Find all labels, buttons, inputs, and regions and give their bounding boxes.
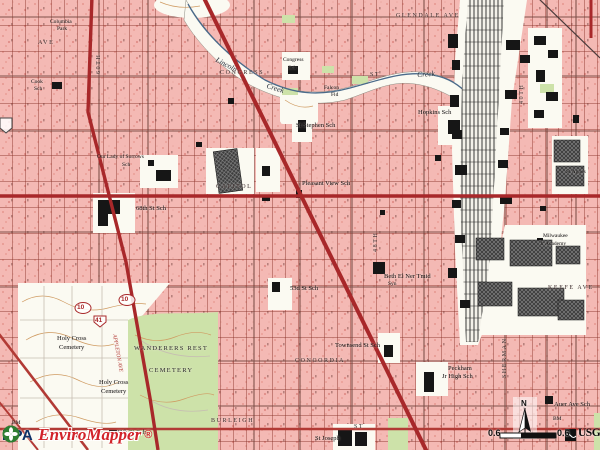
- map-label-60th: 60TH: [96, 54, 102, 74]
- enviromapper-map[interactable]: ColumbiaParkAVECookSch60THLincolnCreekCO…: [0, 0, 600, 450]
- map-label-our-lady-of-sorrows: Our Lady of Sorrows: [97, 155, 144, 161]
- watermark: EPA EnviroMapper ®: [2, 425, 152, 445]
- map-label-cemetery: Cemetery: [101, 389, 126, 396]
- map-label-keefe-ave: KEEFE AVE: [548, 285, 594, 291]
- map-labels-layer: ColumbiaParkAVECookSch60THLincolnCreekCO…: [0, 0, 600, 450]
- map-label-fld: Fld: [331, 93, 338, 99]
- map-label-jr-academy: Jr Academy: [540, 242, 566, 248]
- registered-symbol: ®: [144, 429, 152, 441]
- map-label-park: Park: [57, 27, 67, 33]
- map-label-beth-el-ner-tmid: Beth El Ner Tmid: [384, 274, 431, 281]
- map-label-48th: 48TH: [373, 232, 379, 252]
- map-label-glendale-ave: GLENDALE AVE: [396, 13, 460, 19]
- north-label: N: [521, 399, 527, 408]
- map-label-10: 10: [121, 297, 128, 304]
- map-label-st: ST: [354, 424, 364, 430]
- map-label-cook: Cook: [31, 80, 43, 86]
- map-label-burleigh: BURLEIGH: [211, 418, 254, 424]
- map-label-68th-st-sch: 68th St Sch: [136, 206, 166, 213]
- map-label-creek: Creek: [417, 70, 435, 79]
- map-label-st: ST: [370, 72, 380, 78]
- map-label-sherman: SHERMAN: [502, 337, 508, 378]
- map-label-congress: Congress: [283, 58, 303, 64]
- map-label-st-stephen-sch: St Stephen Sch: [296, 123, 335, 130]
- map-label-auer-ave-sch: Auer Ave Sch: [554, 402, 590, 409]
- map-label-st-agnes: St Agnes: [566, 170, 586, 176]
- map-label-cemetery: Cemetery: [59, 345, 84, 352]
- map-label-columbia: Columbia: [50, 20, 72, 26]
- map-label-10: 10: [77, 305, 84, 312]
- map-label-peckham: Peckham: [448, 366, 472, 373]
- map-label-townsend-st-sch: Townsend St Sch: [335, 343, 380, 350]
- map-label-hopkins-sch: Hopkins Sch: [418, 110, 451, 117]
- map-label-sch: Sch: [34, 87, 42, 93]
- map-label-congress: CONGRESS: [220, 70, 264, 76]
- scale-left-value: 0.6: [488, 428, 501, 438]
- map-label-falcon: Falcon: [324, 86, 339, 92]
- map-label-holy-cross: Holy Cross: [99, 380, 128, 387]
- map-label-concordia: CONCORDIA: [295, 358, 345, 364]
- map-label-cemetery: CEMETERY: [149, 368, 193, 375]
- map-label-sch: Sch: [288, 66, 296, 72]
- map-label-creek: Creek: [266, 82, 285, 95]
- map-label-wanderers-rest: WANDERERS REST: [134, 346, 208, 353]
- map-label-pleasant-view-sch: Pleasant View Sch: [302, 181, 350, 188]
- enviromapper-wordmark: EnviroMapper: [38, 425, 141, 445]
- map-label-53d-st-sch: 53d St Sch: [290, 286, 318, 293]
- map-label-holy-cross: Holy Cross: [57, 336, 86, 343]
- map-label-40th: 40TH: [519, 84, 525, 104]
- map-label-st-joseph: St Joseph: [315, 436, 340, 443]
- map-label-appleton-ave: APPLETON AVE: [111, 334, 123, 373]
- map-label-jr-high-sch: Jr High Sch: [442, 374, 473, 381]
- epa-seal-icon: [2, 425, 20, 443]
- map-label-syn: Syn: [388, 282, 397, 288]
- map-label-capitol: CAPITOL: [216, 184, 252, 190]
- map-label-ave: AVE: [38, 40, 54, 46]
- usgs-wordmark: USGS: [578, 427, 600, 439]
- map-label-sch: Sch: [122, 163, 130, 169]
- map-label-41: 41: [95, 318, 102, 325]
- map-label-milwaukee: Milwaukee: [543, 234, 568, 240]
- map-label-bm: BM: [553, 417, 562, 423]
- scale-right-value: 0.6: [557, 428, 570, 438]
